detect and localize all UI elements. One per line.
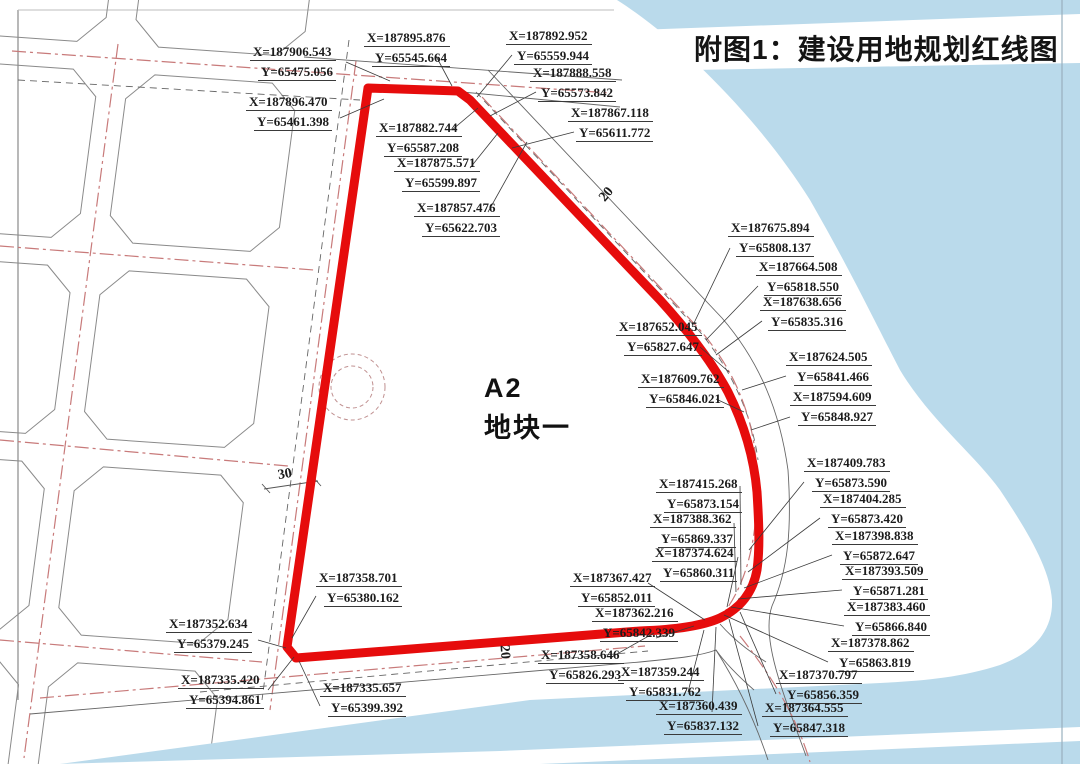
coord-y-value: Y=65848.927 [798, 410, 876, 426]
coord-x-value: X=187896.470 [246, 95, 332, 111]
coord-x-value: X=187352.634 [166, 617, 252, 633]
coord-x-value: X=187675.894 [728, 221, 814, 237]
coord-x-value: X=187895.876 [364, 31, 450, 47]
coord-y-value: Y=65808.137 [736, 241, 814, 257]
leader-line [716, 321, 762, 355]
coord-label: X=187888.558Y=65573.842 [530, 66, 616, 102]
coord-x-value: X=187624.505 [786, 350, 872, 366]
coord-x-value: X=187875.571 [394, 156, 480, 172]
planning-map: 附图1：建设用地规划红线图 A2 地块一 X=187906.543Y=65475… [0, 0, 1080, 764]
leader-line [724, 615, 828, 662]
leader-line [258, 640, 286, 648]
coord-x-value: X=187415.268 [656, 477, 742, 493]
coord-x-value: X=187335.657 [320, 681, 406, 697]
coord-y-value: Y=65827.647 [624, 340, 702, 356]
coord-y-value: Y=65475.056 [258, 65, 336, 81]
coord-label: X=187638.656Y=65835.316 [760, 295, 846, 331]
coord-x-value: X=187398.838 [832, 529, 918, 545]
coord-label: X=187882.744Y=65587.208 [376, 121, 462, 157]
city-block [0, 451, 48, 631]
coord-label: X=187383.460Y=65866.840 [844, 600, 930, 636]
coord-label: X=187895.876Y=65545.664 [364, 31, 450, 67]
coord-label: X=187675.894Y=65808.137 [728, 221, 814, 257]
coord-x-value: X=187882.744 [376, 121, 462, 137]
coord-x-value: X=187594.609 [790, 390, 876, 406]
parcel-label: A2 地块一 [484, 368, 571, 448]
coord-label: X=187358.701Y=65380.162 [316, 571, 402, 607]
coord-label: X=187624.505Y=65841.466 [786, 350, 872, 386]
coord-label: X=187359.244Y=65831.762 [618, 665, 704, 701]
coord-label: X=187867.118Y=65611.772 [568, 106, 653, 142]
leader-line [299, 661, 320, 706]
coord-x-value: X=187867.118 [568, 106, 653, 122]
coord-label: X=187892.952Y=65559.944 [506, 29, 592, 65]
coord-y-value: Y=65380.162 [324, 591, 402, 607]
coord-x-value: X=187367.427 [570, 571, 655, 587]
parcel-code: A2 [484, 368, 571, 408]
coord-label: X=187362.216Y=65842.339 [592, 606, 678, 642]
coord-x-value: X=187362.216 [592, 606, 678, 622]
coord-x-value: X=187335.420 [178, 673, 264, 689]
coord-x-value: X=187360.439 [656, 699, 742, 715]
leader-line [742, 376, 786, 390]
coord-label: X=187367.427Y=65852.011 [570, 571, 655, 607]
coord-x-value: X=187383.460 [844, 600, 930, 616]
coord-x-value: X=187857.476 [414, 201, 500, 217]
coord-y-value: Y=65573.842 [538, 86, 616, 102]
coord-y-value: Y=65873.590 [812, 476, 890, 492]
coord-y-value: Y=65611.772 [576, 126, 653, 142]
leader-line [731, 607, 844, 626]
city-block [0, 647, 22, 764]
coord-x-value: X=187370.797 [776, 668, 862, 684]
coord-y-value: Y=65399.392 [328, 701, 406, 717]
coord-x-value: X=187364.555 [762, 701, 848, 717]
coord-label: X=187335.657Y=65399.392 [320, 681, 406, 717]
coord-y-value: Y=65866.840 [852, 620, 930, 636]
leader-line [706, 286, 758, 340]
coord-label: X=187358.646Y=65826.293 [538, 648, 624, 684]
coord-y-value: Y=65826.293 [546, 668, 624, 684]
coord-y-value: Y=65599.897 [402, 176, 480, 192]
coord-label: X=187896.470Y=65461.398 [246, 95, 332, 131]
coord-y-value: Y=65559.944 [514, 49, 592, 65]
coord-label: X=187393.509Y=65871.281 [842, 564, 928, 600]
coord-y-value: Y=65871.281 [850, 584, 928, 600]
city-block [0, 255, 73, 435]
coord-x-value: X=187378.862 [828, 636, 914, 652]
coord-label: X=187652.045Y=65827.647 [616, 320, 702, 356]
coord-y-value: Y=65394.861 [186, 693, 264, 709]
coord-x-value: X=187404.285 [820, 492, 906, 508]
coord-y-value: Y=65841.466 [794, 370, 872, 386]
coord-x-value: X=187374.624 [652, 546, 737, 562]
coord-x-value: X=187409.783 [804, 456, 890, 472]
coord-label: X=187374.624Y=65860.311 [652, 546, 737, 582]
coord-label: X=187664.508Y=65818.550 [756, 260, 842, 296]
coord-x-value: X=187359.244 [618, 665, 704, 681]
coord-label: X=187335.420Y=65394.861 [178, 673, 264, 709]
coord-y-value: Y=65837.132 [664, 719, 742, 735]
coord-x-value: X=187358.701 [316, 571, 402, 587]
map-title: 附图1：建设用地规划红线图 [694, 28, 1059, 68]
road-width-label: 30 [277, 467, 293, 483]
coord-y-value: Y=65860.311 [660, 566, 737, 582]
coord-y-value: Y=65545.664 [372, 51, 450, 67]
coord-label: X=187594.609Y=65848.927 [790, 390, 876, 426]
coord-x-value: X=187358.646 [538, 648, 624, 664]
coord-x-value: X=187892.952 [506, 29, 592, 45]
coord-y-value: Y=65873.420 [828, 512, 906, 528]
city-block [0, 0, 125, 43]
leader-line [751, 417, 790, 430]
coord-x-value: X=187652.045 [616, 320, 702, 336]
coord-label: X=187398.838Y=65872.647 [832, 529, 918, 565]
coord-label: X=187370.797Y=65856.359 [776, 668, 862, 704]
coord-y-value: Y=65461.398 [254, 115, 332, 131]
coord-y-value: Y=65835.316 [768, 315, 846, 331]
coord-y-value: Y=65847.318 [770, 721, 848, 737]
city-block [0, 59, 99, 239]
coord-label: X=187409.783Y=65873.590 [804, 456, 890, 492]
coord-x-value: X=187664.508 [756, 260, 842, 276]
coord-y-value: Y=65622.703 [422, 221, 500, 237]
coord-x-value: X=187388.362 [650, 512, 736, 528]
coord-label: X=187857.476Y=65622.703 [414, 201, 500, 237]
coord-label: X=187404.285Y=65873.420 [820, 492, 906, 528]
coord-x-value: X=187888.558 [530, 66, 616, 82]
coord-label: X=187875.571Y=65599.897 [394, 156, 480, 192]
leader-line [268, 657, 294, 690]
coord-x-value: X=187638.656 [760, 295, 846, 311]
coord-y-value: Y=65379.245 [174, 637, 252, 653]
coord-x-value: X=187609.762 [638, 372, 724, 388]
coord-label: X=187609.762Y=65846.021 [638, 372, 724, 408]
coord-label: X=187906.543Y=65475.056 [250, 45, 336, 81]
coord-x-value: X=187906.543 [250, 45, 336, 61]
coord-y-value: Y=65842.339 [600, 626, 678, 642]
coord-label: X=187364.555Y=65847.318 [762, 701, 848, 737]
leader-line [694, 248, 730, 323]
road-width-label: 20 [497, 645, 512, 660]
coord-y-value: Y=65846.021 [646, 392, 724, 408]
city-block [81, 269, 272, 449]
parcel-name: 地块一 [484, 408, 571, 448]
coord-label: X=187352.634Y=65379.245 [166, 617, 252, 653]
coord-label: X=187415.268Y=65873.154 [656, 477, 742, 513]
coord-x-value: X=187393.509 [842, 564, 928, 580]
coord-label: X=187360.439Y=65837.132 [656, 699, 742, 735]
coord-label: X=187388.362Y=65869.337 [650, 512, 736, 548]
